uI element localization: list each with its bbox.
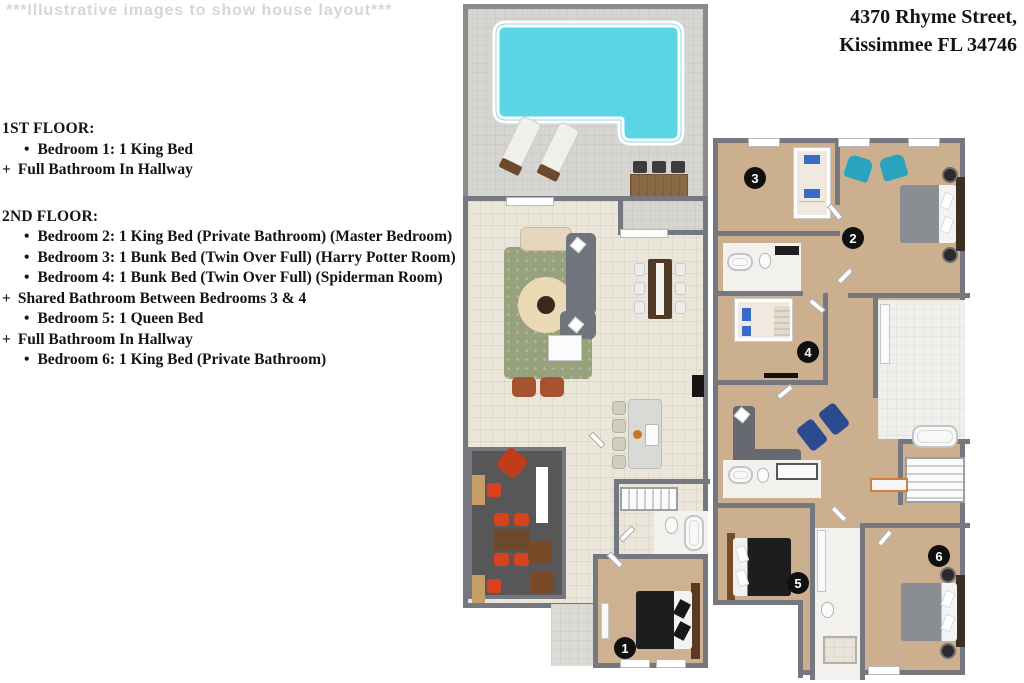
- vanity: [775, 246, 799, 255]
- door-swing: [831, 506, 848, 523]
- game-desk: [472, 475, 485, 505]
- legend-text: Bedroom 2: 1 King Bed (Private Bathroom)…: [37, 228, 452, 245]
- legend-text: Bedroom 5: 1 Queen Bed: [37, 310, 203, 327]
- loveseat: [520, 227, 572, 251]
- plus-marker: +: [2, 330, 11, 351]
- interior-wall: [860, 523, 865, 680]
- lounger-frame: [536, 163, 560, 182]
- bar-stool: [612, 437, 626, 451]
- game-table: [494, 529, 530, 551]
- door-swing: [776, 384, 794, 400]
- king-bed: [901, 583, 957, 641]
- legend-item: +Full Bathroom In Hallway: [2, 160, 460, 181]
- game-desk: [472, 575, 485, 603]
- legend-text: Full Bathroom In Hallway: [18, 161, 193, 178]
- interior-wall: [614, 479, 619, 561]
- stair-railing: [870, 478, 908, 492]
- window: [838, 138, 870, 147]
- first-floor-plan: 1: [463, 4, 713, 670]
- main-living-area: [463, 196, 708, 608]
- nightstand: [942, 247, 958, 263]
- swimming-pool: [476, 14, 701, 154]
- gaming-chair: [495, 446, 529, 480]
- game-chair: [487, 579, 501, 593]
- game-chair: [487, 483, 501, 497]
- headboard: [691, 583, 700, 659]
- window: [656, 659, 686, 668]
- interior-wall: [848, 293, 970, 298]
- slider-door: [506, 197, 554, 206]
- bed-pillow: [673, 621, 691, 641]
- hall-bathroom: [654, 511, 708, 557]
- legend-text: Full Bathroom In Hallway: [18, 331, 193, 348]
- door-swing: [837, 268, 854, 285]
- window: [748, 138, 780, 147]
- building-notch: [713, 600, 803, 678]
- bar-stool: [612, 455, 626, 469]
- toilet: [821, 602, 834, 618]
- bullet-marker: •: [24, 268, 29, 289]
- legend-text: Shared Bathroom Between Bedrooms 3 & 4: [18, 290, 306, 307]
- nightstand: [940, 567, 956, 583]
- staircase: [620, 487, 678, 511]
- plus-marker: +: [2, 289, 11, 310]
- tv: [764, 373, 798, 378]
- bedroom-2-badge: 2: [842, 227, 864, 249]
- bunk-pillow: [804, 155, 820, 164]
- interior-wall: [718, 291, 803, 296]
- king-bed: [900, 185, 956, 243]
- door-swing: [607, 552, 624, 569]
- interior-wall: [718, 503, 813, 508]
- bed-pillow: [673, 599, 691, 619]
- lounger-frame: [498, 157, 522, 176]
- bunk-bed: [794, 148, 830, 218]
- bathtub: [684, 515, 704, 551]
- interior-wall: [718, 380, 828, 385]
- floor1-heading: 1ST FLOOR:: [2, 119, 460, 140]
- property-address: 4370 Rhyme Street, Kissimmee FL 34746: [839, 3, 1017, 59]
- bathtub: [912, 425, 958, 448]
- dining-chair: [675, 263, 686, 276]
- toilet: [759, 253, 771, 269]
- outdoor-chair: [633, 161, 647, 173]
- second-floor-body: 3 2 4: [713, 138, 965, 675]
- bullet-marker: •: [24, 309, 29, 330]
- door-swing: [589, 432, 606, 449]
- legend-item: •Bedroom 1: 1 King Bed: [2, 140, 460, 161]
- legend-text: Bedroom 3: 1 Bunk Bed (Twin Over Full) (…: [37, 249, 455, 266]
- leather-armchair: [528, 541, 552, 563]
- game-chair: [494, 553, 509, 566]
- bedroom-3-badge: 3: [744, 167, 766, 189]
- address-line1: 4370 Rhyme Street,: [839, 3, 1017, 31]
- dining-chair: [634, 263, 645, 276]
- dining-table: [648, 259, 672, 319]
- accent-armchair: [540, 377, 564, 397]
- game-chair: [514, 513, 529, 526]
- bedroom-1: 1: [593, 554, 708, 668]
- interior-wall: [835, 143, 840, 205]
- legend-gap: [2, 181, 460, 207]
- vanity: [817, 530, 826, 592]
- dining-chair: [634, 282, 645, 295]
- window: [908, 138, 940, 147]
- bed-pillow: [940, 216, 955, 234]
- bullet-marker: •: [24, 350, 29, 371]
- legend-item: •Bedroom 6: 1 King Bed (Private Bathroom…: [2, 350, 460, 371]
- vanity: [776, 463, 818, 480]
- legend-text: Bedroom 6: 1 King Bed (Private Bathroom): [37, 351, 326, 368]
- staircase: [905, 457, 965, 503]
- window: [868, 666, 900, 675]
- legend-text: Bedroom 4: 1 Bunk Bed (Twin Over Full) (…: [37, 269, 442, 286]
- bar-stool: [612, 401, 626, 415]
- bullet-marker: •: [24, 227, 29, 248]
- loft-bathroom: [723, 460, 821, 498]
- table-runner: [656, 263, 664, 315]
- headboard: [956, 177, 965, 251]
- nightstand: [940, 643, 956, 659]
- shower: [823, 636, 857, 664]
- cabinet: [548, 335, 582, 361]
- island-sink: [645, 424, 659, 446]
- toilet: [757, 468, 769, 483]
- bed-pillow: [941, 614, 956, 632]
- dining-chair: [634, 301, 645, 314]
- bunk-pillow: [742, 308, 751, 321]
- game-chair: [514, 553, 529, 566]
- queen-bed: [733, 538, 791, 596]
- bunk-rail: [799, 201, 825, 202]
- bedroom-4-badge: 4: [797, 341, 819, 363]
- outdoor-chair: [652, 161, 666, 173]
- interior-wall: [614, 479, 710, 484]
- bunk-pillow: [804, 189, 820, 198]
- bunk-ladder: [774, 306, 790, 336]
- floor2-heading: 2ND FLOOR:: [2, 207, 460, 228]
- teal-armchair: [843, 154, 874, 184]
- kitchen-island: [628, 399, 662, 469]
- bunk-pillow: [742, 326, 751, 336]
- coffee-table: [537, 296, 555, 314]
- nightstand: [942, 167, 958, 183]
- bar-stool: [612, 419, 626, 433]
- vanity: [880, 304, 890, 364]
- game-chair: [494, 513, 509, 526]
- game-room: [468, 447, 566, 599]
- navy-lounger: [818, 402, 851, 436]
- legend-text: Bedroom 1: 1 King Bed: [37, 141, 193, 158]
- address-line2: Kissimmee FL 34746: [839, 31, 1017, 59]
- fruit-bowl: [633, 430, 642, 439]
- bed-pillow: [735, 569, 749, 587]
- interior-wall: [898, 439, 903, 505]
- bullet-marker: •: [24, 140, 29, 161]
- legend-item: •Bedroom 2: 1 King Bed (Private Bathroom…: [2, 227, 460, 248]
- bedroom-6-badge: 6: [928, 545, 950, 567]
- door-swing: [619, 526, 636, 543]
- master-bathroom: [878, 300, 965, 439]
- stove: [692, 375, 704, 397]
- legend-item: •Bedroom 5: 1 Queen Bed: [2, 309, 460, 330]
- headboard: [956, 575, 965, 647]
- legend-item: •Bedroom 3: 1 Bunk Bed (Twin Over Full) …: [2, 248, 460, 269]
- bed-pillow: [940, 192, 955, 210]
- bed-pillow: [941, 590, 956, 608]
- bedroom-legend: 1ST FLOOR: •Bedroom 1: 1 King Bed +Full …: [2, 119, 460, 371]
- bathtub: [728, 466, 753, 484]
- bedroom-1-badge: 1: [614, 637, 636, 659]
- entry-porch: [551, 604, 595, 666]
- door-swing: [877, 529, 893, 547]
- bathtub: [727, 253, 753, 271]
- bunk-bed: [735, 299, 792, 341]
- slider-door: [620, 229, 668, 238]
- dining-chair: [675, 282, 686, 295]
- dining-chair: [675, 301, 686, 314]
- accent-armchair: [512, 377, 536, 397]
- leather-armchair: [530, 571, 554, 593]
- dresser: [601, 603, 609, 639]
- plus-marker: +: [2, 160, 11, 181]
- floorplan-page: ***Illustrative images to show house lay…: [0, 0, 1024, 683]
- legend-item: +Shared Bathroom Between Bedrooms 3 & 4: [2, 289, 460, 310]
- watermark-text: ***Illustrative images to show house lay…: [6, 2, 392, 20]
- legend-item: +Full Bathroom In Hallway: [2, 330, 460, 351]
- shared-bathroom: [723, 243, 801, 291]
- interior-wall: [718, 231, 840, 236]
- outdoor-chair: [671, 161, 685, 173]
- legend-item: •Bedroom 4: 1 Bunk Bed (Twin Over Full) …: [2, 268, 460, 289]
- bullet-marker: •: [24, 248, 29, 269]
- media-console: [536, 467, 548, 523]
- window: [620, 659, 650, 668]
- teal-armchair: [878, 153, 908, 182]
- bedroom-5-badge: 5: [787, 572, 809, 594]
- toilet: [665, 517, 678, 534]
- interior-wall: [865, 523, 970, 528]
- hall-bathroom-2f: [815, 528, 860, 680]
- bed-pillow: [735, 545, 749, 563]
- king-bed: [636, 591, 692, 649]
- second-floor-plan: 3 2 4: [713, 138, 967, 678]
